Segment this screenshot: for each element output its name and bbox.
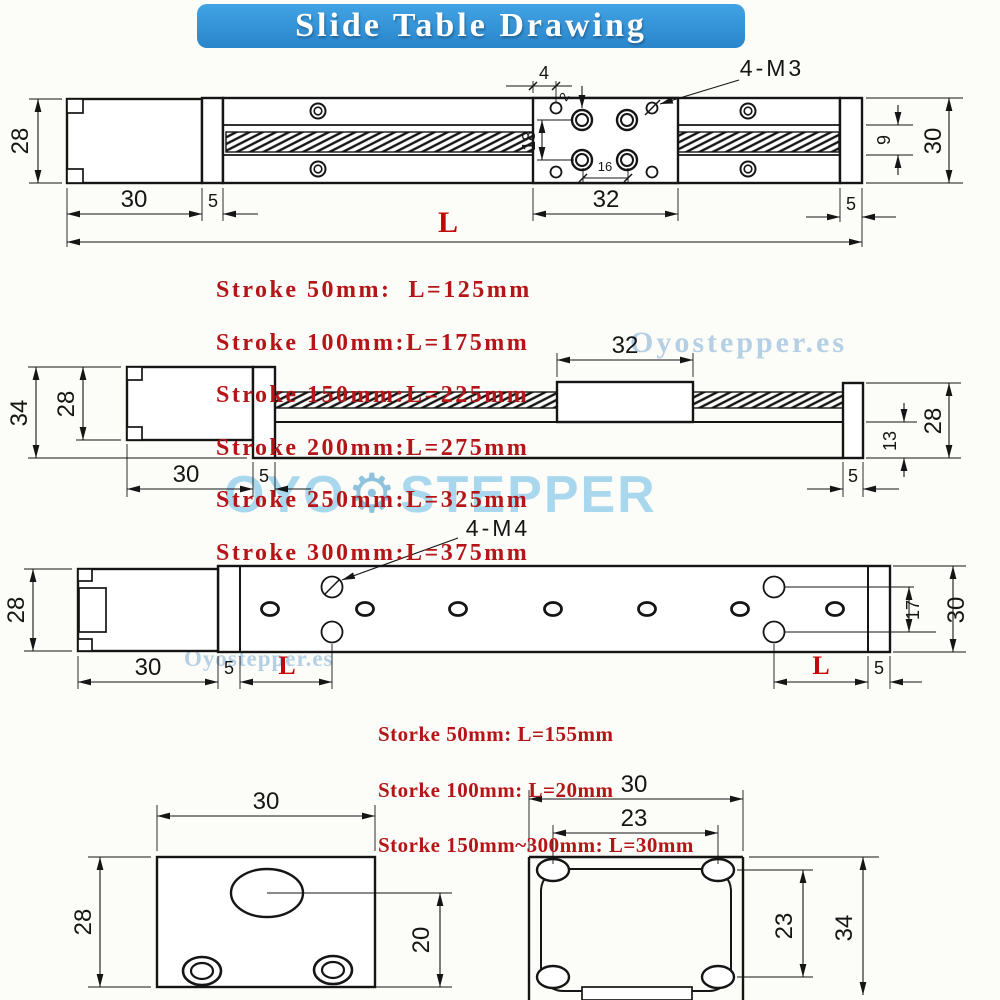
carriage-block [557,382,693,422]
dim-text-34: 34 [831,915,858,942]
dim-motor-height-28: 28 [3,569,72,651]
dim-text-16: 16 [598,159,612,174]
dim-motor-length-30: 30 [78,654,218,689]
dim-base-13: 13 [866,403,917,477]
drawing-page: Oyostepper.es Oyostepper.es OYO⚙STEPPER [0,0,1000,1000]
stroke-table-line: Stroke 50mm: L=125mm [216,282,532,300]
stroke-table-line: Stroke 150mm:L=225mm [216,387,532,405]
dim-text-23: 23 [771,913,798,940]
dim-text-28: 28 [920,408,947,435]
dim-hole-span-17: 17 [903,587,923,632]
stroke-table-line: Stroke 300mm:L=375mm [216,545,532,563]
dim-text-5: 5 [208,191,218,211]
motor-notch [67,169,83,183]
dim-slot-9: 9 [866,105,913,175]
stroke-table-line: Stroke 100mm:L=175mm [216,335,532,353]
dim-flange-5-left: 5 [224,656,240,689]
stroke-table-line: Storke 50mm: L=155mm [378,725,694,744]
dim-flange-5-left: 5 [208,188,258,221]
dim-offset-20: 20 [375,893,452,987]
dim-text-30: 30 [253,788,280,815]
motor-notch [78,639,92,651]
dim-text-28: 28 [70,909,97,936]
dim-text-4: 4 [539,63,549,83]
lead-screw-thread [226,132,533,152]
dim-text-L: L [438,206,458,239]
stroke-table-line: Storke 100mm: L=20mm [378,781,694,800]
title-banner: Slide Table Drawing [197,4,745,48]
dim-text-L: L [278,651,295,680]
top-view: 4-M3 4 2 18 [7,55,963,247]
thread-callout-4m3: 4-M3 [740,55,804,81]
dim-text-30: 30 [121,186,148,213]
dim-flange-5-right: 5 [868,656,922,689]
dim-carriage-length-32: 32 [533,186,678,221]
flange-plate [202,98,223,183]
dim-text-5: 5 [874,658,884,678]
dim-carriage-32: 32 [557,332,693,377]
motor-outline [67,99,202,183]
dim-text-L: L [812,651,829,680]
dim-motor-length-30: 30 [67,186,202,247]
dim-text-9: 9 [874,135,894,145]
dim-height-34: 34 [749,857,879,995]
motor-notch [67,99,83,113]
dim-text-30: 30 [920,128,947,155]
dim-text-17: 17 [903,600,923,620]
dim-overall-length-L: L [67,206,862,242]
dim-text-32: 32 [593,186,620,213]
dim-text-30: 30 [135,654,162,681]
dim-text-5: 5 [224,658,234,678]
dim-text-28: 28 [7,128,34,155]
end-block [843,383,863,458]
dim-text-32: 32 [612,332,639,359]
stroke-table-top: Stroke 50mm: L=125mm Stroke 100mm:L=175m… [216,247,532,597]
label-4m3: 4-M3 [660,55,804,104]
dim-width-30: 30 [157,788,375,851]
motor-notch [127,427,142,440]
motor-notch [127,367,142,380]
dim-text-28: 28 [53,391,80,418]
bottom-tab [582,987,692,1000]
stroke-table-bottom: Storke 50mm: L=155mm Storke 100mm: L=20m… [378,688,694,892]
dim-text-5: 5 [848,466,858,486]
stroke-table-line: Stroke 250mm:L=325mm [216,492,532,510]
dim-text-13: 13 [880,431,900,451]
dim-text-18: 18 [519,131,539,151]
dim-hole-span-23-right: 23 [737,870,813,977]
dim-motor-height-28: 28 [7,99,62,183]
page-title: Slide Table Drawing [295,7,647,44]
top-rail-assembly [67,98,862,183]
dim-text-34: 34 [6,400,33,427]
stroke-table-line: Storke 150mm~300mm: L=30mm [378,836,694,855]
dim-text-30: 30 [943,597,970,624]
dim-text-30: 30 [173,461,200,488]
lead-screw-thread [678,132,839,152]
end-block [840,98,862,183]
motor-connector [79,588,106,632]
dim-text-20: 20 [408,927,435,954]
dim-motor-height-28: 28 [53,367,121,440]
motor-notch [78,569,92,581]
dim-height-28: 28 [70,857,151,987]
dim-text-28: 28 [3,597,30,624]
dim-flange-5-right: 5 [807,462,899,497]
dim-text-5: 5 [846,194,856,214]
stroke-table-line: Stroke 200mm:L=275mm [216,440,532,458]
dim-flange-5-right: 5 [806,188,896,247]
